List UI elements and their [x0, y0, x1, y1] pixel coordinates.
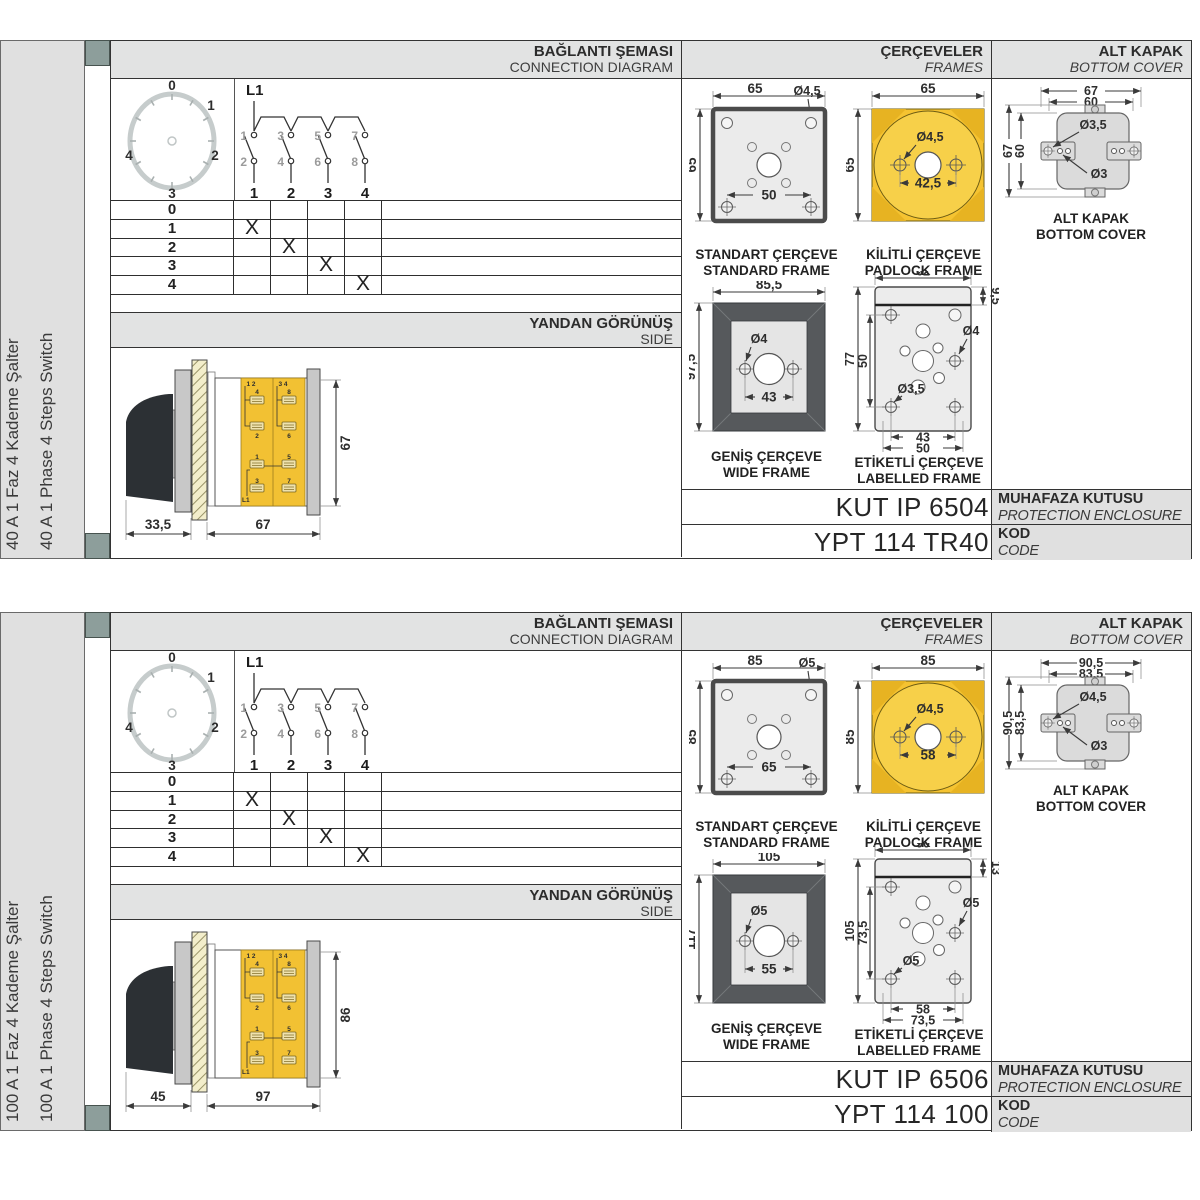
binder-tab-top: [85, 40, 110, 66]
mounting-plate: [192, 360, 207, 520]
header-title-en: SIDE: [111, 904, 673, 920]
datasheet-panel: BAĞLANTI ŞEMASI CONNECTION DIAGRAM ÇERÇE…: [110, 40, 1192, 559]
label-strip-dimension: 13: [989, 861, 999, 875]
contact-number: 8: [351, 155, 358, 169]
product-title-turkish: 100 A 1 Faz 4 Kademe Şalter: [3, 901, 23, 1122]
bottom-cover-header: ALT KAPAK BOTTOM COVER: [991, 613, 1191, 651]
table-row: 2 X: [111, 811, 681, 830]
header-title-tr: ALT KAPAK: [991, 43, 1183, 60]
label-en: PROTECTION ENCLOSURE: [998, 508, 1191, 525]
table-row: 1 X: [111, 220, 681, 239]
phase-label: L1: [246, 654, 264, 671]
code-table: KUT IP 6504 MUHAFAZA KUTUSU PROTECTION E…: [681, 489, 1191, 558]
caption-tr: ETİKETLİ ÇERÇEVE: [839, 455, 999, 471]
frame-width-dimension: 85: [747, 655, 763, 668]
frame-width-dimension: 65: [920, 83, 936, 96]
frame-height-dimension: 65: [689, 157, 699, 173]
frame-width-dimension: 90: [916, 843, 930, 851]
caption-en: WIDE FRAME: [689, 1037, 844, 1053]
header-title-tr: BAĞLANTI ŞEMASI: [111, 43, 673, 60]
handle: [126, 966, 173, 1074]
table-row: 1 X: [111, 792, 681, 811]
caption-tr: GENİŞ ÇERÇEVE: [689, 1021, 844, 1037]
caption-tr: STANDART ÇERÇEVE: [689, 247, 844, 263]
header-title-en: CONNECTION DIAGRAM: [111, 632, 673, 648]
bottom-cover-caption: ALT KAPAK BOTTOM COVER: [991, 211, 1191, 244]
header-title-tr: YANDAN GÖRÜNÜŞ: [111, 887, 673, 904]
contact-cell: [234, 848, 271, 866]
caption-en: WIDE FRAME: [689, 465, 844, 481]
contact-cell: [308, 848, 345, 866]
table-row: 4 X: [111, 848, 681, 867]
switching-table: 0 1 X 2 X: [111, 772, 681, 867]
contact-cell-closed: X: [345, 848, 382, 866]
contact-number: 4: [277, 727, 284, 741]
caption-tr: ALT KAPAK: [991, 211, 1191, 227]
step-label: 1: [111, 220, 234, 238]
enclosure-code-row: KUT IP 6506 MUHAFAZA KUTUSU PROTECTION E…: [681, 1062, 1191, 1097]
contact-cell: [345, 220, 382, 238]
product-section: 100 A 1 Faz 4 Kademe Şalter 100 A 1 Phas…: [0, 612, 1192, 1131]
hole-diameter-label: Ø3,5: [897, 382, 924, 396]
product-title-sidebar: 100 A 1 Faz 4 Kademe Şalter 100 A 1 Phas…: [0, 612, 85, 1131]
header-title-en: SIDE: [111, 332, 673, 348]
hole-diameter-label: Ø3: [1091, 167, 1108, 181]
terminal-label: 4: [255, 389, 259, 396]
handle: [126, 394, 173, 502]
standard-frame-figure: 65 Ø4,5 65 50: [689, 83, 844, 245]
product-code-label: KOD CODE: [991, 1097, 1191, 1131]
contact-cell-closed: X: [308, 829, 345, 847]
header-title-en: BOTTOM COVER: [991, 60, 1183, 76]
table-row: 0: [111, 201, 681, 220]
terminal-group-label: 1 2: [246, 953, 255, 960]
datasheet-panel: BAĞLANTI ŞEMASI CONNECTION DIAGRAM ÇERÇE…: [110, 612, 1192, 1131]
contact-cell: [308, 773, 345, 791]
dial-position-0: 0: [168, 651, 176, 665]
contact-cell: [345, 201, 382, 219]
switch-leg-1: 1 2 1: [240, 129, 258, 200]
frame-height-dimension: 65: [846, 157, 857, 173]
column-separator: [681, 613, 682, 1129]
frames-header: ÇERÇEVELER FRAMES: [681, 41, 991, 79]
terminal-label: 7: [287, 478, 291, 485]
catalog-page: 40 A 1 Faz 4 Kademe Şalter 40 A 1 Phase …: [0, 0, 1200, 1200]
caption-en: BOTTOM COVER: [991, 799, 1191, 815]
outer-spacing-dimension: 50: [916, 442, 930, 456]
header-title-en: FRAMES: [681, 632, 983, 648]
caption-en: STANDARD FRAME: [689, 263, 844, 279]
labelled-frame-figure: 62 9,5 77 50 Ø4 Ø3,5: [839, 271, 999, 455]
switch-leg-4: 7 8 4: [351, 129, 370, 200]
switch-leg-3: 5 6 3: [314, 129, 332, 200]
table-filler: [382, 848, 681, 866]
body-depth-dimension: 97: [255, 1089, 270, 1104]
contact-cell-closed: X: [234, 792, 271, 810]
contact-cell: [271, 276, 308, 294]
contact-cell: [234, 257, 271, 275]
terminal-label: 1: [255, 1026, 259, 1033]
switch-leg-2: 3 4 2: [277, 129, 295, 200]
product-section: 40 A 1 Faz 4 Kademe Şalter 40 A 1 Phase …: [0, 40, 1192, 559]
label-en: CODE: [998, 543, 1191, 560]
hole-diameter-label: Ø4: [751, 332, 768, 346]
table-filler: [382, 792, 681, 810]
product-code-value: YPT 114 TR40: [681, 525, 991, 559]
height-dimension: 67: [338, 435, 353, 450]
header-title-en: FRAMES: [681, 60, 983, 76]
mounting-plate: [192, 932, 207, 1092]
column-separator: [681, 41, 682, 557]
contact-number: 6: [314, 155, 321, 169]
switching-table: 0 1 X 2 X: [111, 200, 681, 295]
dial-position-4: 4: [125, 148, 133, 163]
switch-leg-2: 3 4 2: [277, 701, 295, 772]
label-tr: KOD: [998, 1098, 1191, 1115]
standard-frame-caption: STANDART ÇERÇEVE STANDARD FRAME: [689, 819, 844, 852]
contact-cell-closed: X: [271, 811, 308, 829]
table-filler: [382, 220, 681, 238]
bottom-cover-figure: 90,5 83,5 90,5 83,5 Ø4,5: [1001, 657, 1181, 781]
frame-width-dimension: 85: [920, 655, 936, 668]
product-title-sidebar: 40 A 1 Faz 4 Kademe Şalter 40 A 1 Phase …: [0, 40, 85, 559]
contact-number: 5: [314, 701, 321, 715]
inner-height-dimension: 50: [856, 354, 870, 368]
front-depth-dimension: 45: [150, 1089, 166, 1104]
switch-side-body: 1 2 3 4 4 2 8 6 1 3 5 7 L1: [126, 360, 320, 520]
contact-cell: [234, 829, 271, 847]
dial-position-4: 4: [125, 720, 133, 735]
terminal-label: 1: [255, 454, 259, 461]
switch-leg-1: 1 2 1: [240, 701, 258, 772]
outer-spacing-dimension: 73,5: [911, 1014, 935, 1028]
bottom-cover-caption: ALT KAPAK BOTTOM COVER: [991, 783, 1191, 816]
table-filler: [382, 239, 681, 257]
product-title-english: 40 A 1 Phase 4 Steps Switch: [37, 333, 57, 550]
step-label: 3: [111, 829, 234, 847]
switch-leg-4: 7 8 4: [351, 701, 370, 772]
switch-leg-3: 5 6 3: [314, 701, 332, 772]
step-label: 0: [111, 773, 234, 791]
terminal-number: 1: [250, 757, 258, 772]
contact-number: 7: [351, 701, 358, 715]
phase-label: L1: [246, 82, 264, 99]
contact-cell: [308, 276, 345, 294]
dial-position-0: 0: [168, 79, 176, 93]
enclosure-code-label: MUHAFAZA KUTUSU PROTECTION ENCLOSURE: [991, 490, 1191, 524]
step-label: 2: [111, 811, 234, 829]
contact-number: 7: [351, 129, 358, 143]
table-row: 4 X: [111, 276, 681, 295]
inner-height-dimension: 73,5: [856, 921, 870, 945]
contact-cell: [308, 792, 345, 810]
terminal-label: 6: [287, 433, 291, 440]
label-tr: KOD: [998, 526, 1191, 543]
hole-diameter-label: Ø3,5: [1079, 118, 1106, 132]
enclosure-code-row: KUT IP 6504 MUHAFAZA KUTUSU PROTECTION E…: [681, 490, 1191, 525]
terminal-label: 5: [287, 454, 291, 461]
hole-diameter-label: Ø4,5: [916, 130, 943, 144]
table-filler: [382, 811, 681, 829]
standard-frame-caption: STANDART ÇERÇEVE STANDARD FRAME: [689, 247, 844, 280]
phase-label: L1: [242, 497, 250, 504]
hole-diameter-label: Ø5: [963, 896, 980, 910]
product-title-turkish: 40 A 1 Faz 4 Kademe Şalter: [3, 338, 23, 550]
caption-en: STANDARD FRAME: [689, 835, 844, 851]
label-en: PROTECTION ENCLOSURE: [998, 1080, 1191, 1097]
contact-cell: [345, 773, 382, 791]
circuit-schematic: L1 1 2 1 3: [234, 79, 681, 200]
contact-cell: [271, 773, 308, 791]
caption-en: BOTTOM COVER: [991, 227, 1191, 243]
dial-position-2: 2: [211, 720, 219, 735]
contact-number: 5: [314, 129, 321, 143]
contact-number: 2: [240, 155, 247, 169]
terminal-label: 2: [255, 433, 259, 440]
terminal-group-label: 3 4: [278, 953, 287, 960]
hole-spacing-dimension: 55: [761, 962, 777, 977]
contact-number: 3: [277, 129, 284, 143]
header-title-tr: YANDAN GÖRÜNÜŞ: [111, 315, 673, 332]
caption-tr: GENİŞ ÇERÇEVE: [689, 449, 844, 465]
side-view-header: YANDAN GÖRÜNÜŞ SIDE: [111, 312, 681, 348]
frame-width-dimension: 85,5: [756, 281, 783, 292]
hole-diameter-label: Ø3: [1091, 739, 1108, 753]
wide-frame-figure: 85,5 97,5 Ø4 43: [689, 281, 844, 449]
contact-cell: [308, 201, 345, 219]
header-title-tr: ALT KAPAK: [991, 615, 1183, 632]
label-strip-dimension: 9,5: [989, 287, 999, 304]
wide-frame-figure: 105 117 Ø5 55: [689, 853, 844, 1021]
table-filler: [382, 201, 681, 219]
phase-label: L1: [242, 1069, 250, 1076]
table-filler: [382, 257, 681, 275]
contact-cell: [271, 848, 308, 866]
terminal-label: 8: [287, 961, 291, 968]
label-tr: MUHAFAZA KUTUSU: [998, 491, 1191, 508]
caption-tr: ETİKETLİ ÇERÇEVE: [839, 1027, 999, 1043]
caption-en: LABELLED FRAME: [839, 471, 999, 487]
hole-spacing-dimension: 58: [920, 748, 936, 763]
frame-height-dimension: 85: [689, 729, 699, 745]
product-title-english: 100 A 1 Phase 4 Steps Switch: [37, 895, 57, 1122]
binder-tab-bottom: [85, 533, 110, 559]
hole-diameter-label: Ø5: [751, 904, 768, 918]
frame-width-dimension: 105: [758, 853, 781, 864]
step-label: 0: [111, 201, 234, 219]
table-row: 3 X: [111, 829, 681, 848]
enclosure-code-value: KUT IP 6506: [681, 1062, 991, 1096]
switch-position-dial: 0 1 2 3 4: [111, 79, 234, 200]
contact-cell-closed: X: [234, 220, 271, 238]
contact-cell: [234, 239, 271, 257]
frames-header: ÇERÇEVELER FRAMES: [681, 613, 991, 651]
step-label: 1: [111, 792, 234, 810]
contact-cell: [345, 811, 382, 829]
hole-spacing-dimension: 43: [761, 390, 777, 405]
step-label: 2: [111, 239, 234, 257]
terminal-number: 4: [361, 757, 370, 772]
cover-height-inner: 60: [1013, 144, 1027, 158]
body-depth-dimension: 67: [255, 517, 270, 532]
connection-diagram-header: BAĞLANTI ŞEMASI CONNECTION DIAGRAM: [111, 613, 681, 651]
switch-legs: 1 2 1 3 4 2 5: [240, 129, 370, 200]
terminal-number: 2: [287, 185, 295, 200]
step-label: 4: [111, 848, 234, 866]
height-dimension: 86: [338, 1007, 353, 1023]
frame-height-dimension: 117: [689, 928, 698, 950]
caption-en: LABELLED FRAME: [839, 1043, 999, 1059]
contact-number: 3: [277, 701, 284, 715]
table-filler: [382, 276, 681, 294]
dial-position-3: 3: [168, 758, 176, 772]
caption-tr: KİLİTLİ ÇERÇEVE: [846, 819, 1001, 835]
contact-number: 6: [314, 727, 321, 741]
frame-width-dimension: 62: [916, 271, 930, 279]
terminal-number: 3: [324, 185, 332, 200]
hole-diameter-label: Ø5: [799, 656, 816, 670]
terminal-group-label: 1 2: [246, 381, 255, 388]
frame-height-dimension: 85: [846, 729, 857, 745]
label-en: CODE: [998, 1115, 1191, 1132]
product-code-label: KOD CODE: [991, 525, 1191, 559]
dial-position-3: 3: [168, 186, 176, 200]
terminal-label: 5: [287, 1026, 291, 1033]
labelled-frame-caption: ETİKETLİ ÇERÇEVE LABELLED FRAME: [839, 455, 999, 488]
contact-cell: [271, 829, 308, 847]
contact-number: 1: [240, 701, 247, 715]
labelled-frame-figure: 90 13 105 73,5 Ø5 Ø5: [839, 843, 999, 1027]
code-table: KUT IP 6506 MUHAFAZA KUTUSU PROTECTION E…: [681, 1061, 1191, 1130]
contact-cell: [308, 220, 345, 238]
labelled-frame-caption: ETİKETLİ ÇERÇEVE LABELLED FRAME: [839, 1027, 999, 1060]
binder-tab-bottom: [85, 1105, 110, 1131]
hole-diameter-label: Ø4,5: [916, 702, 943, 716]
binder-strip: [85, 612, 110, 1131]
terminal-label: 3: [255, 1050, 259, 1057]
contact-cell: [234, 276, 271, 294]
bottom-cover-header: ALT KAPAK BOTTOM COVER: [991, 41, 1191, 79]
frame-height-dimension: 77: [843, 352, 857, 366]
contact-cell-closed: X: [271, 239, 308, 257]
terminal-group-label: 3 4: [278, 381, 287, 388]
terminal-label: 3: [255, 478, 259, 485]
table-filler: [382, 773, 681, 791]
terminal-label: 2: [255, 1005, 259, 1012]
product-code-value: YPT 114 100: [681, 1097, 991, 1131]
product-code-row: YPT 114 TR40 KOD CODE: [681, 525, 1191, 559]
dial-position-2: 2: [211, 148, 219, 163]
circuit-schematic: L1 1 2 1 3: [234, 651, 681, 772]
frame-height-dimension: 97,5: [689, 353, 698, 380]
standard-frame-figure: 85 Ø5 85 65: [689, 655, 844, 817]
cover-height-inner: 83,5: [1013, 711, 1027, 735]
enclosure-code-value: KUT IP 6504: [681, 490, 991, 524]
connection-diagram-header: BAĞLANTI ŞEMASI CONNECTION DIAGRAM: [111, 41, 681, 79]
hole-spacing-dimension: 65: [761, 760, 777, 775]
enclosure-code-label: MUHAFAZA KUTUSU PROTECTION ENCLOSURE: [991, 1062, 1191, 1096]
terminal-label: 4: [255, 961, 259, 968]
label-tr: MUHAFAZA KUTUSU: [998, 1063, 1191, 1080]
dial-position-1: 1: [207, 670, 215, 685]
contact-cell: [271, 257, 308, 275]
wide-frame-caption: GENİŞ ÇERÇEVE WIDE FRAME: [689, 449, 844, 482]
contact-number: 8: [351, 727, 358, 741]
contact-cell: [271, 201, 308, 219]
contact-number: 4: [277, 155, 284, 169]
terminal-number: 1: [250, 185, 258, 200]
table-row: 3 X: [111, 257, 681, 276]
contact-number: 1: [240, 129, 247, 143]
dial-position-1: 1: [207, 98, 215, 113]
table-row: 0: [111, 773, 681, 792]
header-title-tr: ÇERÇEVELER: [681, 615, 983, 632]
hole-diameter-label: Ø4: [963, 324, 980, 338]
terminal-label: 6: [287, 1005, 291, 1012]
terminal-number: 3: [324, 757, 332, 772]
frame-height-dimension: 105: [843, 921, 857, 942]
terminal-number: 4: [361, 185, 370, 200]
padlock-frame-figure: 65 65 Ø4,5 42,5: [846, 83, 1001, 245]
caption-tr: STANDART ÇERÇEVE: [689, 819, 844, 835]
hole-diameter-label: Ø5: [903, 954, 920, 968]
header-title-en: BOTTOM COVER: [991, 632, 1183, 648]
contact-cell-closed: X: [345, 276, 382, 294]
binder-tab-top: [85, 612, 110, 638]
hole-spacing-dimension: 50: [761, 188, 776, 203]
product-code-row: YPT 114 100 KOD CODE: [681, 1097, 1191, 1131]
contact-cell: [234, 811, 271, 829]
side-view-drawing: 1 2 3 4 4 2 8 6 1 3 5 7 L1 86 45: [111, 920, 681, 1132]
header-title-tr: BAĞLANTI ŞEMASI: [111, 615, 673, 632]
caption-tr: ALT KAPAK: [991, 783, 1191, 799]
header-title-en: CONNECTION DIAGRAM: [111, 60, 673, 76]
contact-cell: [345, 792, 382, 810]
contact-cell: [345, 239, 382, 257]
bottom-cover-figure: 67 60 67 60 Ø3,5 Ø3: [1001, 85, 1181, 209]
padlock-frame-figure: 85 85 Ø4,5 58: [846, 655, 1001, 817]
frame-width-dimension: 65: [747, 83, 763, 96]
side-view-header: YANDAN GÖRÜNÜŞ SIDE: [111, 884, 681, 920]
switch-side-body: 1 2 3 4 4 2 8 6 1 3 5 7 L1: [126, 932, 320, 1092]
table-row: 2 X: [111, 239, 681, 258]
side-view-drawing: 1 2 3 4 4 2 8 6 1 3 5 7 L1 67 33,5: [111, 348, 681, 560]
step-label: 4: [111, 276, 234, 294]
hole-diameter-label: Ø4,5: [793, 84, 820, 98]
step-label: 3: [111, 257, 234, 275]
wide-frame-caption: GENİŞ ÇERÇEVE WIDE FRAME: [689, 1021, 844, 1054]
caption-tr: KİLİTLİ ÇERÇEVE: [846, 247, 1001, 263]
front-depth-dimension: 33,5: [145, 517, 172, 532]
terminal-label: 7: [287, 1050, 291, 1057]
header-title-tr: ÇERÇEVELER: [681, 43, 983, 60]
contact-number: 2: [240, 727, 247, 741]
switch-position-dial: 0 1 2 3 4: [111, 651, 234, 772]
hole-spacing-dimension: 42,5: [915, 176, 942, 191]
terminal-label: 8: [287, 389, 291, 396]
terminal-number: 2: [287, 757, 295, 772]
hole-diameter-label: Ø4,5: [1079, 690, 1106, 704]
switch-legs: 1 2 1 3 4 2 5: [240, 701, 370, 772]
table-filler: [382, 829, 681, 847]
contact-cell-closed: X: [308, 257, 345, 275]
binder-strip: [85, 40, 110, 559]
